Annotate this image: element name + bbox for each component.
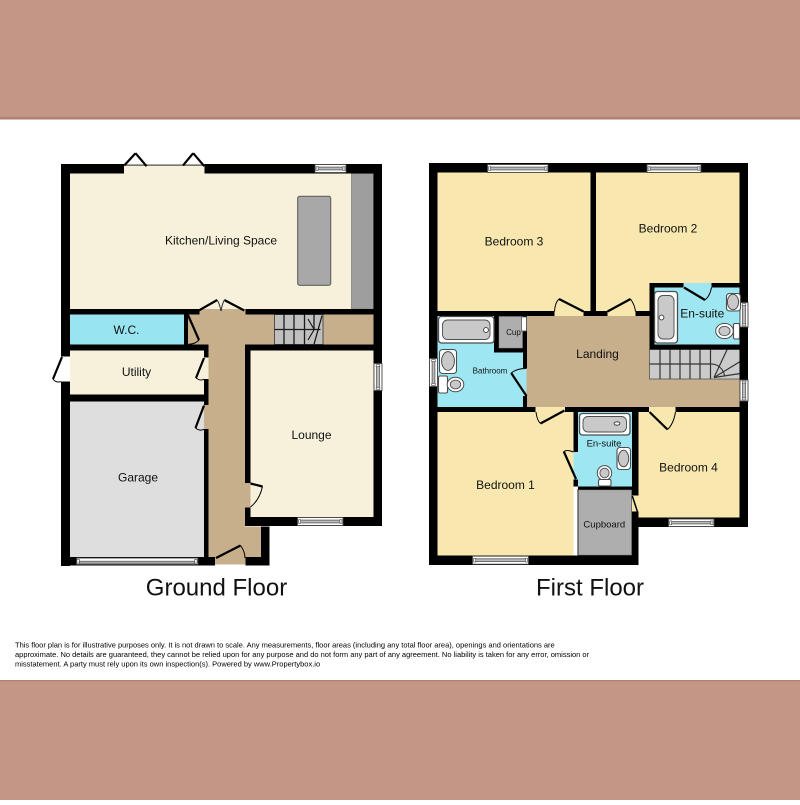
svg-text:Bedroom 1: Bedroom 1 bbox=[476, 478, 535, 492]
svg-text:En-suite: En-suite bbox=[680, 307, 724, 321]
svg-text:Ground Floor: Ground Floor bbox=[146, 575, 287, 602]
svg-text:Utility: Utility bbox=[122, 365, 151, 379]
svg-text:Kitchen/Living Space: Kitchen/Living Space bbox=[165, 233, 277, 247]
svg-text:Bedroom 2: Bedroom 2 bbox=[639, 221, 698, 235]
svg-text:W.C.: W.C. bbox=[114, 323, 140, 337]
svg-text:Cupboard: Cupboard bbox=[583, 519, 625, 530]
svg-text:Bathroom: Bathroom bbox=[473, 366, 508, 375]
svg-text:misstatement. A party must rel: misstatement. A party must rely upon its… bbox=[15, 659, 320, 668]
svg-text:Lounge: Lounge bbox=[291, 428, 331, 442]
svg-text:Bedroom 4: Bedroom 4 bbox=[659, 460, 718, 474]
svg-text:Bedroom 3: Bedroom 3 bbox=[485, 234, 544, 248]
svg-text:Landing: Landing bbox=[576, 347, 619, 361]
svg-text:En-suite: En-suite bbox=[587, 439, 622, 450]
svg-text:Cup: Cup bbox=[506, 328, 521, 337]
svg-text:approximate. No details are gu: approximate. No details are guaranteed, … bbox=[15, 650, 590, 659]
svg-text:This floor plan is for illustr: This floor plan is for illustrative purp… bbox=[15, 640, 555, 649]
svg-text:Garage: Garage bbox=[118, 470, 158, 484]
svg-text:First Floor: First Floor bbox=[536, 575, 644, 602]
